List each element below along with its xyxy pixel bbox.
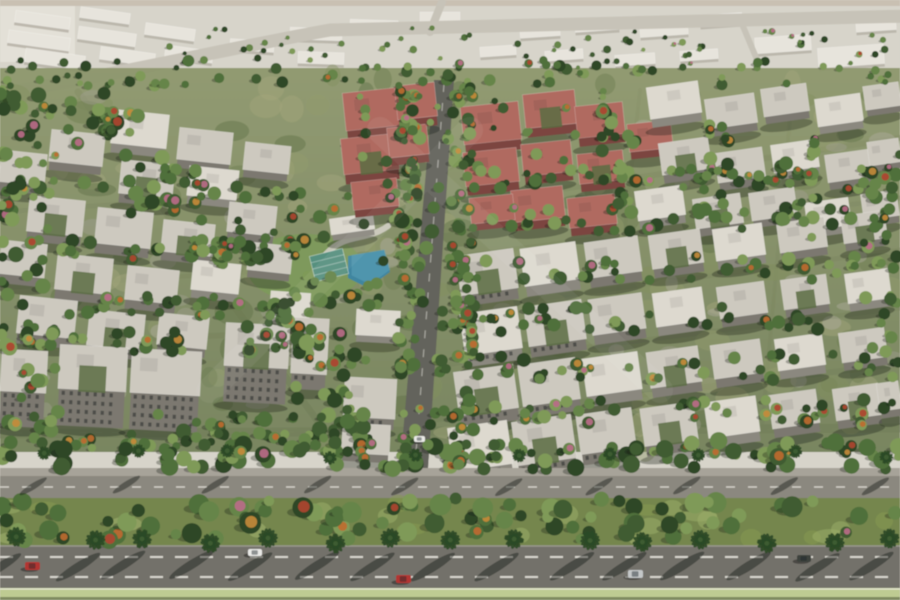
building xyxy=(516,89,581,148)
scene-canvas xyxy=(0,0,900,600)
screenshot-root xyxy=(0,0,900,600)
top-border-strip xyxy=(0,0,900,6)
building xyxy=(349,309,402,354)
aerial-compound-render xyxy=(0,0,900,600)
scene-layers xyxy=(0,0,900,600)
building xyxy=(639,80,706,138)
building xyxy=(118,348,204,443)
building xyxy=(754,83,813,135)
